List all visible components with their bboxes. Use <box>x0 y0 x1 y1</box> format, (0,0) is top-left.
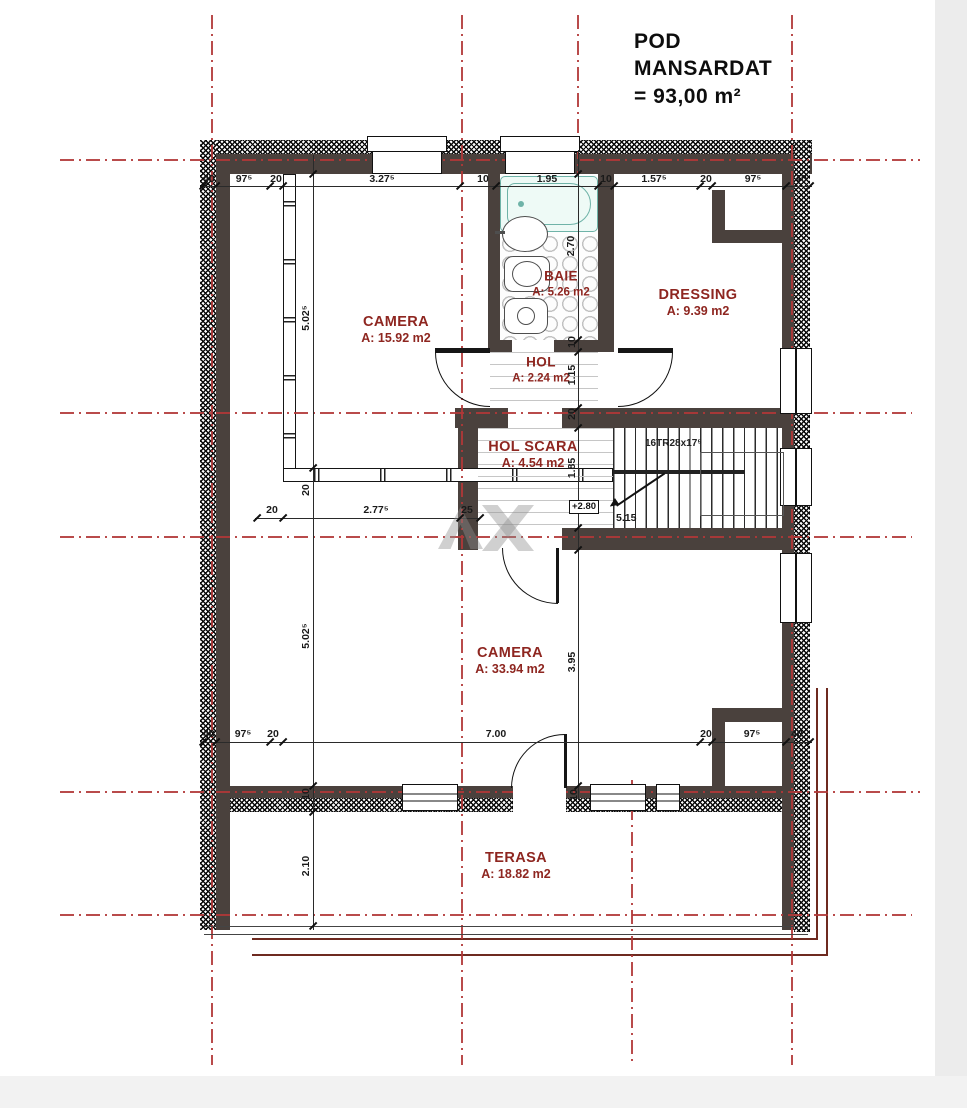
plan-title-line: = 93,00 m² <box>634 83 772 110</box>
dim-label: 40 <box>791 729 803 740</box>
sink-icon <box>502 216 548 252</box>
dim-line <box>203 742 812 743</box>
stairs-wall-top <box>618 408 782 428</box>
axis-line <box>631 780 633 1065</box>
bathtub-drain <box>518 201 524 207</box>
dim-label: 97⁵ <box>236 174 253 185</box>
knee-wall-vertical <box>283 174 296 482</box>
dim-label: 2.77⁵ <box>363 505 388 516</box>
dim-label: 1.85 <box>567 458 578 478</box>
plan-title: POD MANSARDAT = 93,00 m² <box>634 28 772 110</box>
dim-label: 2.70 <box>566 236 577 256</box>
dim-line <box>578 150 579 800</box>
room-label-dressing: DRESSING A: 9.39 m2 <box>659 286 738 320</box>
dim-label: 1.95 <box>537 174 557 185</box>
room-label-hol: HOL A: 2.24 m2 <box>512 354 570 385</box>
dressing-closet-wall <box>712 230 782 243</box>
window <box>780 448 812 506</box>
dim-label: 3.27⁵ <box>369 174 394 185</box>
dim-label: 97⁵ <box>235 729 252 740</box>
window <box>367 136 447 152</box>
terasa-railing <box>204 926 808 935</box>
door-arc <box>435 352 490 407</box>
exterior-wall-left <box>216 154 230 930</box>
axis-line <box>791 15 793 1065</box>
window <box>505 151 575 174</box>
stairs-wall-bottom <box>562 528 782 550</box>
door-arc <box>618 352 673 407</box>
stairs-landing-outline <box>700 452 784 516</box>
sink-faucet <box>495 231 505 234</box>
dim-label: 1.15 <box>567 365 578 385</box>
dim-label: 20 <box>301 484 312 496</box>
room-label-camera-1: CAMERA A: 15.92 m2 <box>361 313 430 347</box>
dim-label: 1.57⁵ <box>641 174 666 185</box>
dim-label: 3.95 <box>567 652 578 672</box>
dim-line <box>313 155 314 930</box>
bidet-basin <box>517 307 535 325</box>
window <box>500 136 580 152</box>
plan-title-line: POD <box>634 28 772 55</box>
dim-line <box>255 518 480 519</box>
window <box>780 348 812 414</box>
room-label-terasa: TERASA A: 18.82 m2 <box>481 849 550 883</box>
window <box>402 784 458 811</box>
room-label-baie: BAIE A: 5.26 m2 <box>532 268 590 299</box>
dim-label: 5.02⁵ <box>301 305 312 330</box>
room-label-camera-2: CAMERA A: 33.94 m2 <box>475 644 544 678</box>
axis-line <box>60 914 912 916</box>
level-marker: +2.80 <box>569 500 599 514</box>
window <box>656 784 680 811</box>
bath-wall-bottom <box>554 340 614 352</box>
bath-wall-left <box>488 174 500 352</box>
page-edge-right <box>935 0 967 1108</box>
dim-label: 10 <box>477 174 489 185</box>
dim-label: 97⁵ <box>744 729 761 740</box>
door-arc <box>502 548 558 604</box>
terasa-door-opening <box>513 786 566 812</box>
stairs-label: 16TR28x17⁵ <box>645 438 702 449</box>
plan-title-line: MANSARDAT <box>634 55 772 82</box>
dim-label: 20 <box>266 505 278 516</box>
window <box>372 151 442 174</box>
dim-line <box>203 186 812 187</box>
dim-label: 5.15 <box>616 513 636 524</box>
window <box>780 553 812 623</box>
closet-wall-bottom-right <box>712 708 782 722</box>
dim-label: 10 <box>569 789 580 801</box>
axis-line <box>60 536 912 538</box>
axis-line <box>461 15 463 1065</box>
exterior-wall-left-hatch <box>200 140 216 930</box>
room-label-hol-scara: HOL SCARA A: 4.54 m2 <box>488 438 578 472</box>
dim-label: 40 <box>795 174 807 185</box>
page-edge-bottom <box>0 1076 967 1108</box>
bath-wall-bottom <box>488 340 512 352</box>
roof-eave-outline <box>252 688 828 956</box>
floor-plan: POD MANSARDAT = 93,00 m² CAMERA A: 15.92… <box>0 0 967 1108</box>
window <box>590 784 646 811</box>
dim-label: 5.02⁵ <box>301 623 312 648</box>
dim-label: 7.00 <box>486 729 506 740</box>
dim-label: 2.10 <box>301 856 312 876</box>
dim-label: 97⁵ <box>745 174 762 185</box>
bath-wall-right <box>598 174 614 352</box>
